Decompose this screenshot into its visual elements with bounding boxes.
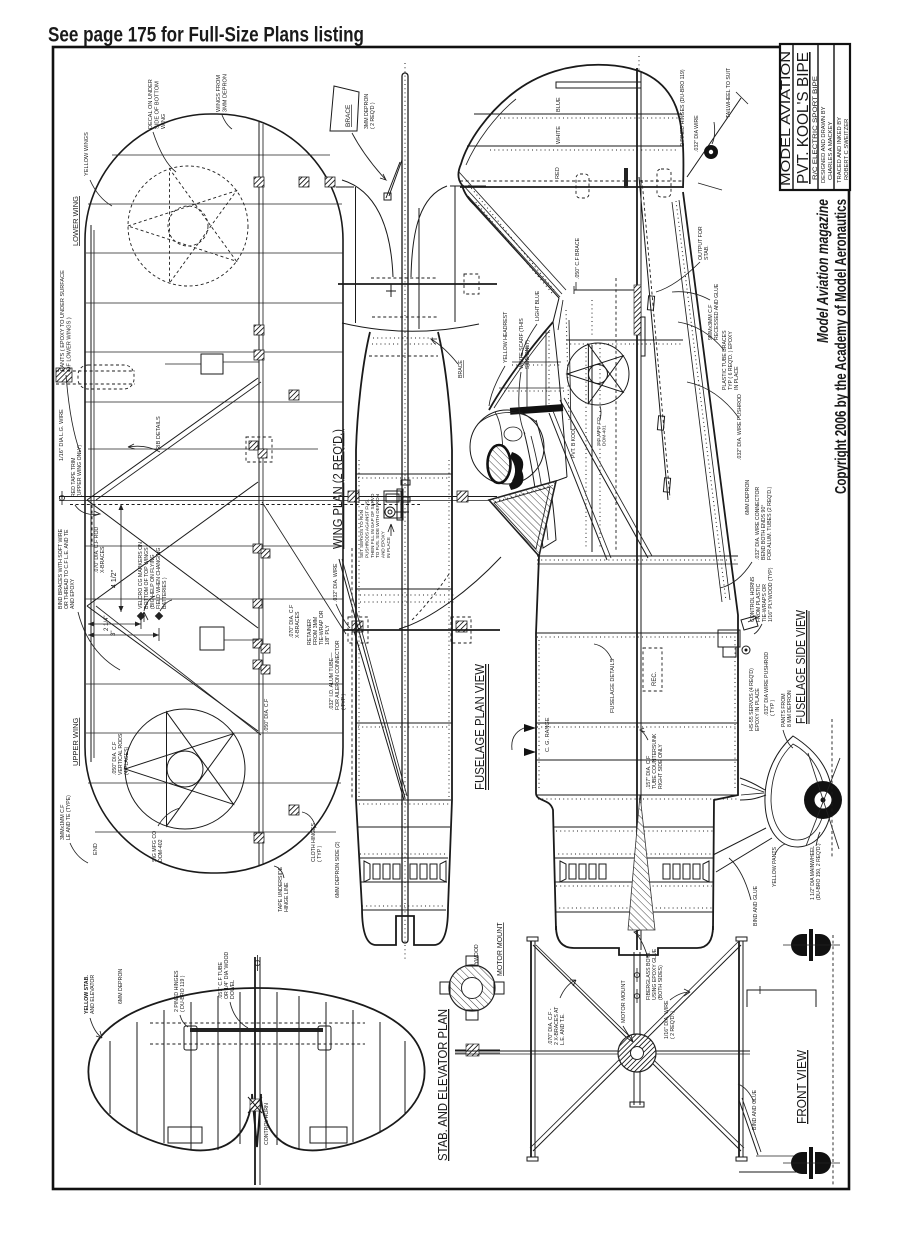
svg-text:BRACE: BRACE xyxy=(458,360,464,378)
svg-text:.050" C.F BRACE: .050" C.F BRACE xyxy=(575,237,581,279)
svg-text:6MM DEPRON: 6MM DEPRON xyxy=(745,480,751,515)
svg-text:.032" DIA. WIRE PUSHROD: .032" DIA. WIRE PUSHROD xyxy=(737,394,743,460)
svg-text:REC.: REC. xyxy=(652,671,658,686)
svg-text:YELLOW WINGS: YELLOW WINGS xyxy=(84,132,90,176)
svg-text:2 1/4": 2 1/4" xyxy=(104,616,110,631)
svg-text:TAILWHEEL TO SUIT: TAILWHEEL TO SUIT xyxy=(726,67,732,118)
svg-text:3": 3" xyxy=(111,631,117,636)
svg-text:MOTOR MOUNT: MOTOR MOUNT xyxy=(497,922,504,976)
svg-text:TRACED AND INKED BYROBERT C: TRACED AND INKED BYROBERT C SWEITZER xyxy=(837,117,850,183)
svg-text:END: END xyxy=(93,843,99,855)
svg-text:BIND AND GLUE: BIND AND GLUE xyxy=(752,1089,758,1130)
svg-text:STAB. AND ELEVATOR PLAN: STAB. AND ELEVATOR PLAN xyxy=(435,1009,450,1161)
svg-text:RIB DETAILS: RIB DETAILS xyxy=(156,416,162,450)
svg-text:Model Aviation magazine: Model Aviation magazine xyxy=(815,199,832,343)
svg-text:YELLOW HEADREST: YELLOW HEADREST xyxy=(503,311,509,363)
svg-text:6MM DEPRON: 6MM DEPRON xyxy=(118,969,124,1004)
svg-text:RED: RED xyxy=(555,167,561,179)
svg-text:6MM DEPRON SIDE (2): 6MM DEPRON SIDE (2) xyxy=(335,841,341,898)
svg-text:FRONT VIEW: FRONT VIEW xyxy=(794,1049,809,1124)
svg-text:.032" DIA. WIRE: .032" DIA. WIRE xyxy=(333,563,339,602)
svg-text:PVT. KOOL'S BIPE: PVT. KOOL'S BIPE xyxy=(795,52,812,184)
svg-text:.050" DIA. C.F: .050" DIA. C.F xyxy=(264,699,270,732)
svg-text:LIGHT BLUE: LIGHT BLUE xyxy=(535,290,541,321)
svg-text:CONTROL HORN: CONTROL HORN xyxy=(264,1103,270,1145)
svg-text:MODEL AVIATION: MODEL AVIATION xyxy=(779,51,793,186)
svg-text:C. G. RANGE: C. G. RANGE xyxy=(545,717,551,752)
svg-text:BIND AND GLUE: BIND AND GLUE xyxy=(753,885,759,926)
svg-text:YELLOW PANTS: YELLOW PANTS xyxy=(772,846,778,887)
svg-text:FUSELAGE DETAILS: FUSELAGE DETAILS xyxy=(610,658,616,713)
svg-text:BLUE: BLUE xyxy=(556,97,562,112)
svg-text:FUSELAGE SIDE VIEW: FUSELAGE SIDE VIEW xyxy=(793,609,808,724)
svg-text:PVT. B KOOL: PVT. B KOOL xyxy=(571,427,577,458)
svg-text:FUSELAGE PLAN VIEW: FUSELAGE PLAN VIEW xyxy=(472,663,487,790)
svg-text:BRACE: BRACE xyxy=(345,104,352,127)
svg-text:UPPER WING: UPPER WING xyxy=(71,717,80,766)
svg-text:4 1/2": 4 1/2" xyxy=(111,569,118,588)
svg-text:WINGS FROM3MM DEPRON: WINGS FROM3MM DEPRON xyxy=(216,74,228,112)
svg-text:PANTS FROM8 MM DEPRON: PANTS FROM8 MM DEPRON xyxy=(781,690,793,727)
svg-text:1 1/2" DIA MAINWHEEL(DU-BRO: 1 1/2" DIA MAINWHEEL(DU-BRO 150, 2 REQ'D… xyxy=(810,843,822,900)
svg-text:Copyright 2006 by the Academy: Copyright 2006 by the Academy of Model A… xyxy=(833,199,850,494)
svg-text:2 PINED HINGES( DU-BRO 119 ): 2 PINED HINGES( DU-BRO 119 ) xyxy=(174,970,186,1012)
svg-text:WHITE: WHITE xyxy=(556,126,562,144)
svg-text:WING PLAN (2 REQ'D.): WING PLAN (2 REQ'D.) xyxy=(330,429,345,549)
svg-text:.032" DIA WIRE: .032" DIA WIRE xyxy=(694,115,700,152)
svg-text:LOWER WING: LOWER WING xyxy=(71,196,80,246)
svg-text:R/C ELECTRIC SPORT BIPE: R/C ELECTRIC SPORT BIPE xyxy=(812,76,819,180)
svg-text:YELLOW STAB.AND ELEVATOR: YELLOW STAB.AND ELEVATOR xyxy=(84,975,96,1014)
svg-text:1/16" DIA L.G. WIRE: 1/16" DIA L.G. WIRE xyxy=(59,409,65,461)
svg-text:MOTOR MOUNT: MOTOR MOUNT xyxy=(621,980,627,1023)
svg-text:See page 175 for Full-Size Pla: See page 175 for Full-Size Plans listing xyxy=(48,24,364,47)
svg-text:2 PINED HINGES (DU-BRO 119): 2 PINED HINGES (DU-BRO 119) xyxy=(680,69,686,146)
